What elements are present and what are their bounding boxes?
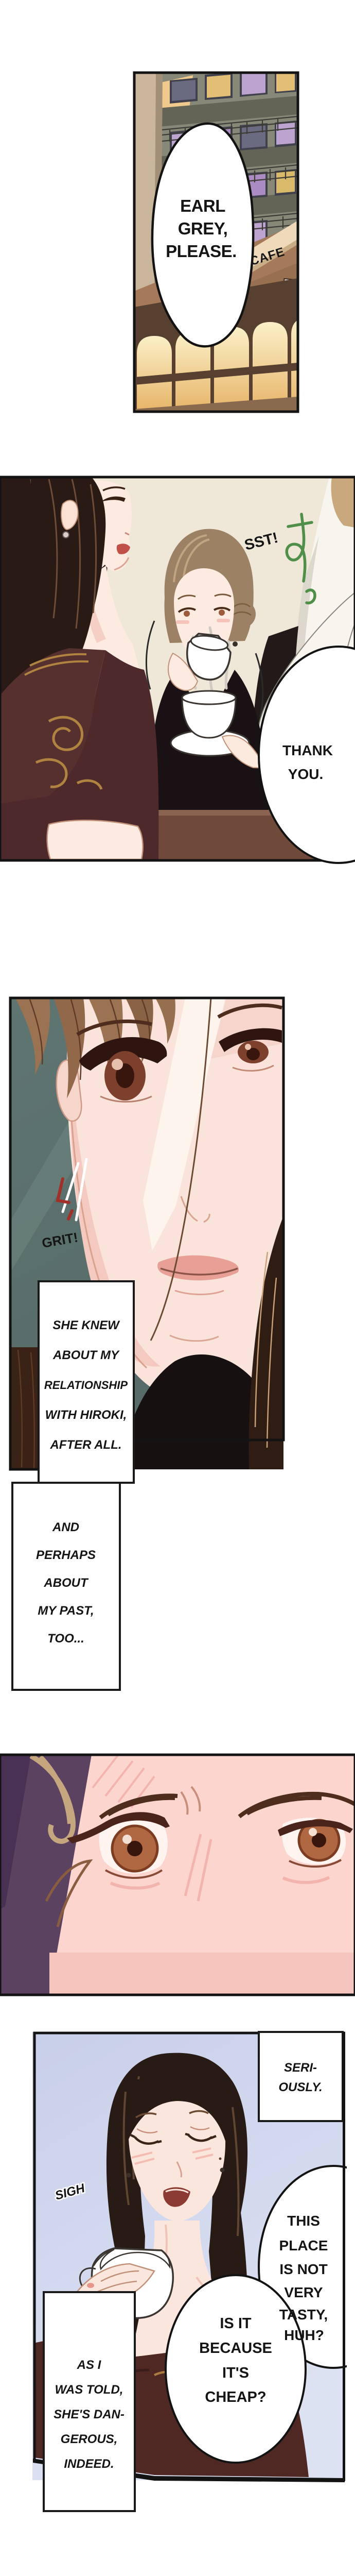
svg-text:SERI-: SERI-: [284, 2061, 317, 2075]
svg-text:SHE'S DAN-: SHE'S DAN-: [54, 2408, 125, 2421]
svg-text:WAS TOLD,: WAS TOLD,: [55, 2383, 123, 2397]
svg-text:IS IT: IS IT: [220, 2315, 252, 2332]
svg-text:PLACE: PLACE: [279, 2238, 328, 2253]
svg-text:PLEASE.: PLEASE.: [166, 242, 237, 261]
svg-text:TOO...: TOO...: [47, 1632, 84, 1646]
svg-text:IT'S: IT'S: [222, 2365, 249, 2381]
svg-text:THANK: THANK: [282, 742, 333, 758]
svg-text:OUSLY.: OUSLY.: [278, 2080, 322, 2094]
svg-text:PERHAPS: PERHAPS: [36, 1548, 96, 1562]
svg-text:ABOUT: ABOUT: [43, 1576, 89, 1590]
svg-text:BECAUSE: BECAUSE: [199, 2340, 272, 2357]
svg-text:CHEAP?: CHEAP?: [205, 2389, 266, 2405]
svg-text:IS NOT: IS NOT: [279, 2261, 327, 2277]
svg-text:HUH?: HUH?: [284, 2327, 324, 2343]
svg-text:VERY: VERY: [284, 2284, 323, 2300]
svg-text:TASTY,: TASTY,: [279, 2307, 328, 2323]
svg-text:AND: AND: [52, 1520, 79, 1534]
svg-text:AS I: AS I: [77, 2358, 102, 2372]
svg-text:EARL: EARL: [180, 196, 225, 215]
svg-text:INDEED.: INDEED.: [64, 2457, 114, 2471]
svg-text:RELATIONSHIP: RELATIONSHIP: [44, 1379, 128, 1392]
svg-text:GREY,: GREY,: [178, 219, 228, 238]
svg-text:MY PAST,: MY PAST,: [38, 1604, 94, 1618]
svg-text:THIS: THIS: [287, 2213, 320, 2229]
svg-text:GEROUS,: GEROUS,: [61, 2432, 118, 2446]
svg-text:YOU.: YOU.: [288, 766, 323, 782]
svg-text:SHE KNEW: SHE KNEW: [52, 1318, 120, 1332]
svg-text:WITH HIROKI,: WITH HIROKI,: [45, 1408, 127, 1422]
svg-text:AFTER ALL.: AFTER ALL.: [49, 1438, 121, 1452]
svg-text:ABOUT MY: ABOUT MY: [52, 1348, 120, 1362]
